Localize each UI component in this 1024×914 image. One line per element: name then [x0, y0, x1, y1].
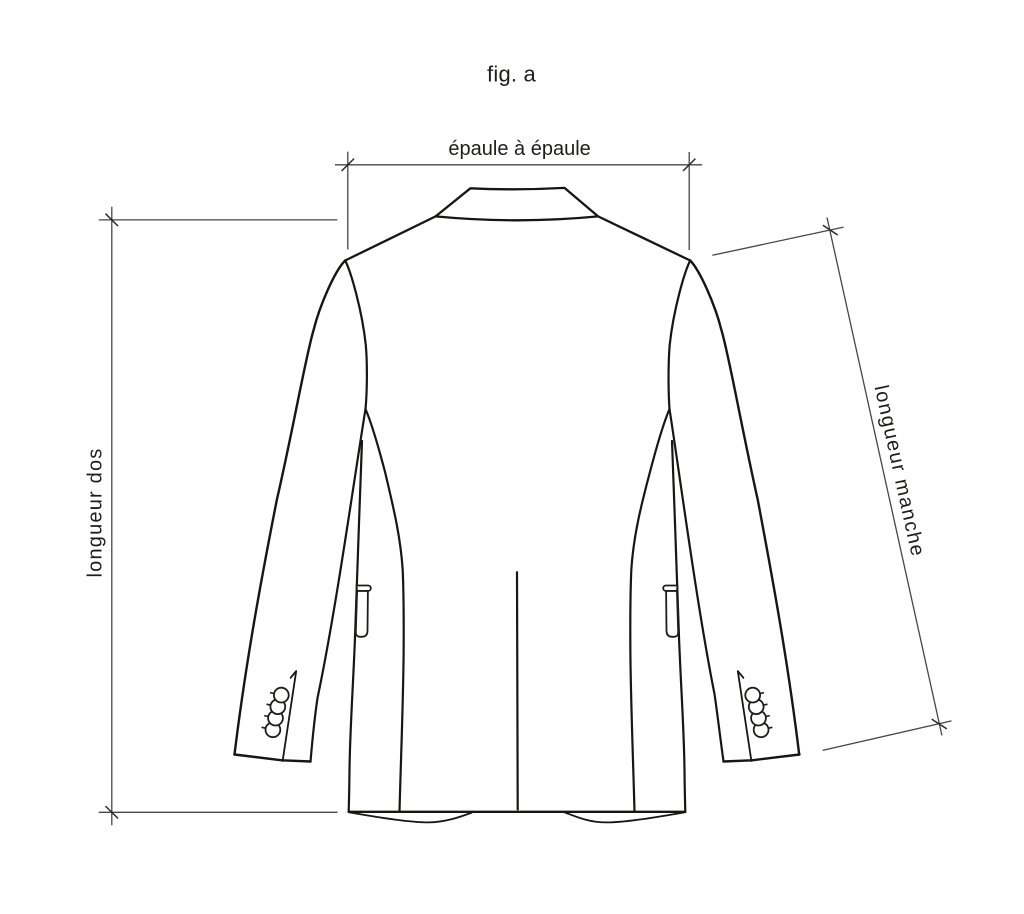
svg-text:longueur dos: longueur dos: [85, 448, 107, 578]
svg-text:fig. a: fig. a: [487, 61, 536, 86]
svg-text:épaule à épaule: épaule à épaule: [448, 138, 590, 160]
